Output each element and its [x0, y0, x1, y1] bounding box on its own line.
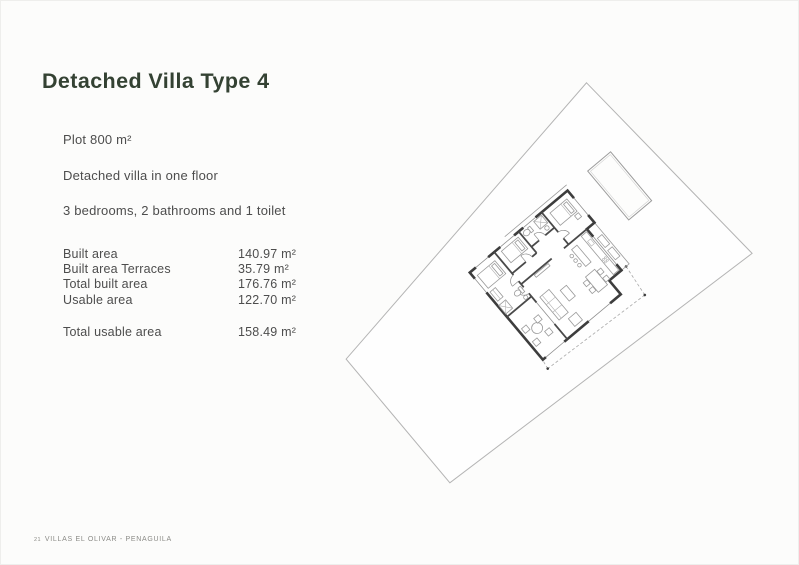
area-label: Total built area: [63, 277, 238, 292]
page-title: Detached Villa Type 4: [42, 69, 269, 94]
spec-rooms: 3 bedrooms, 2 bathrooms and 1 toilet: [63, 203, 286, 218]
area-label: Usable area: [63, 293, 238, 308]
footer: 21 VILLAS EL OLIVAR - PENAGUILA: [34, 536, 172, 543]
area-table: Built area 140.97 m² Built area Terraces…: [63, 247, 333, 340]
area-label: Built area: [63, 247, 238, 262]
area-label: Total usable area: [63, 325, 238, 340]
spec-plot: Plot 800 m²: [63, 132, 286, 147]
slide-page: Detached Villa Type 4 Plot 800 m² Detach…: [0, 0, 799, 565]
area-value: 140.97 m²: [238, 247, 296, 262]
area-label: Built area Terraces: [63, 262, 238, 277]
area-value: 35.79 m²: [238, 262, 289, 277]
table-row: Usable area 122.70 m²: [63, 293, 333, 308]
spec-list: Plot 800 m² Detached villa in one floor …: [63, 132, 286, 239]
project-name: VILLAS EL OLIVAR - PENAGUILA: [45, 536, 172, 543]
table-total-row: Total usable area 158.49 m²: [63, 325, 333, 340]
table-row: Built area 140.97 m²: [63, 247, 333, 262]
area-value: 122.70 m²: [238, 293, 296, 308]
table-row: Built area Terraces 35.79 m²: [63, 262, 333, 277]
table-row: Total built area 176.76 m²: [63, 277, 333, 292]
area-value: 158.49 m²: [238, 325, 296, 340]
spec-floors: Detached villa in one floor: [63, 168, 286, 183]
area-value: 176.76 m²: [238, 277, 296, 292]
page-number: 21: [34, 537, 41, 543]
